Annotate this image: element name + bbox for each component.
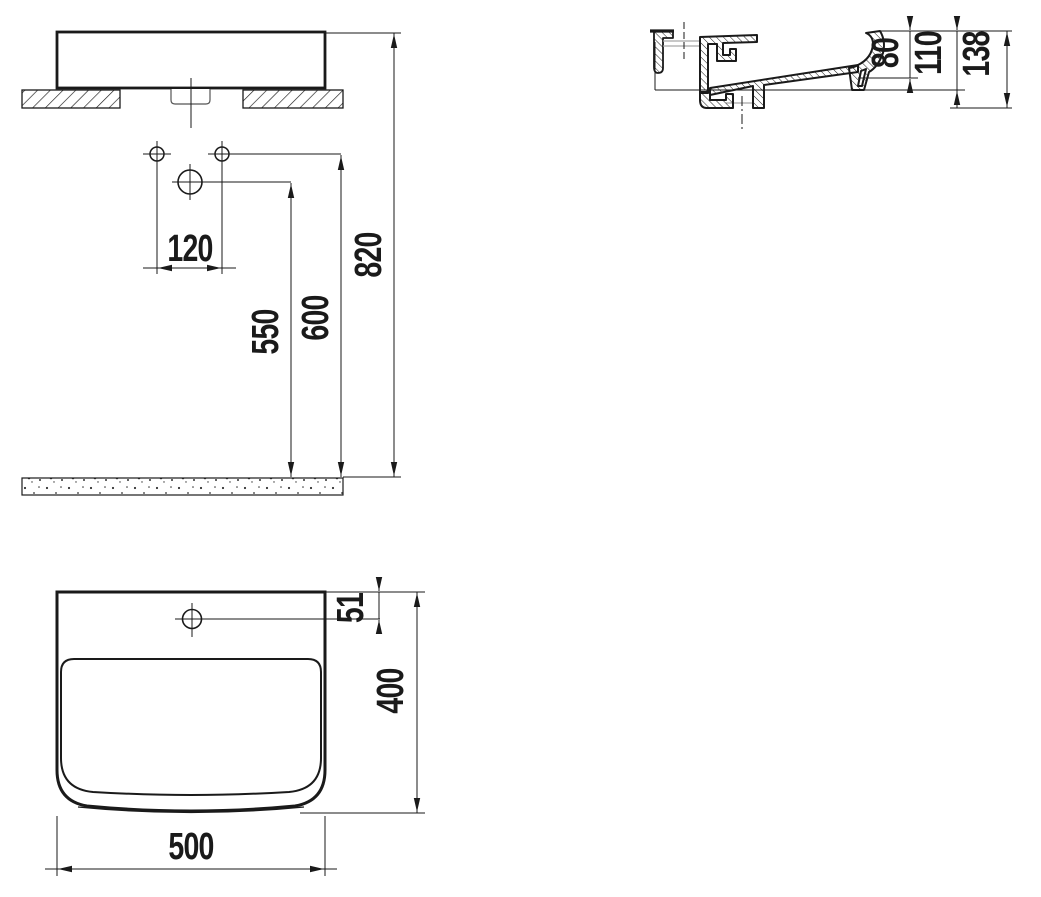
dim-label-depth: 400 [370,668,412,713]
dim-label-total-depth: 138 [956,31,998,76]
dim-label-fixing-height: 600 [295,295,337,340]
technical-drawing-canvas: 120 550 600 820 [0,0,1041,897]
front-wall-block-left [22,90,120,108]
plan-outer-rim [57,592,325,811]
dim-label-width: 500 [168,826,213,868]
dim-label-hole-spacing: 120 [167,228,212,270]
dim-label-faucet-offset: 51 [330,593,372,623]
front-view: 120 550 600 820 [22,32,401,495]
dim-label-rim-height: 820 [348,232,390,277]
front-floor [22,478,343,495]
front-wall-block-right [243,90,343,108]
technical-drawing-page: 120 550 600 820 [0,0,1041,897]
dim-label-mid-depth: 110 [908,31,950,75]
plan-view: 51 400 500 [45,577,425,876]
dim-label-inner-depth: 80 [865,38,907,68]
section-mounting-rail [650,31,674,73]
dim-label-faucet-height: 550 [245,309,287,354]
section-view: 80 110 138 [650,16,1012,130]
